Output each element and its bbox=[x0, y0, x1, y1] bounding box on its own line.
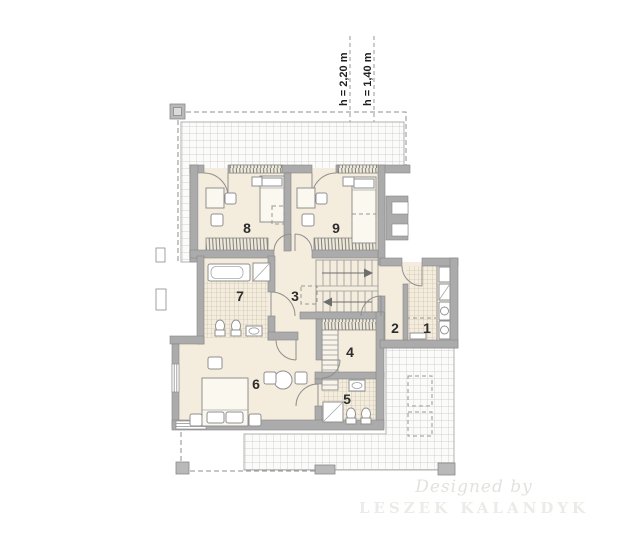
sink-icon-room-7 bbox=[246, 326, 262, 336]
watermark-script-line: Designed by bbox=[414, 477, 533, 497]
chair-icon-room-9 bbox=[316, 193, 327, 204]
designer-watermark: Designed by LESZEK KALANDYK bbox=[359, 477, 589, 517]
cabinet-icon-room-6 bbox=[208, 357, 222, 369]
nightstand-icon-left bbox=[190, 414, 202, 426]
pillow-icon bbox=[262, 178, 282, 186]
post-top-left-core bbox=[174, 108, 182, 116]
bidet-icon-room-5 bbox=[361, 408, 371, 424]
desk-icon-room-9 bbox=[297, 188, 315, 208]
roof-height-annotations: h = 2,20 m h = 1,40 m bbox=[338, 52, 374, 106]
room-label-4: 4 bbox=[346, 344, 354, 360]
washer-icon bbox=[439, 302, 450, 320]
window-room-8 bbox=[230, 165, 282, 173]
pilaster-left-lower bbox=[156, 289, 166, 310]
room-label-7: 7 bbox=[236, 288, 244, 304]
post-bottom-middle bbox=[315, 465, 335, 474]
post-bottom-right bbox=[438, 463, 455, 475]
post-bottom-left bbox=[176, 462, 189, 474]
room-label-2: 2 bbox=[391, 320, 399, 336]
bidet-icon-room-7 bbox=[231, 320, 241, 336]
pillow-icon bbox=[226, 412, 243, 423]
cabinet-icon-room-8 bbox=[211, 214, 223, 226]
chair-icon bbox=[264, 372, 276, 384]
sink-icon-room-5 bbox=[349, 380, 365, 391]
watermark-name-line: LESZEK KALANDYK bbox=[359, 499, 589, 517]
floor-plan-page: h = 2,20 m h = 1,40 m bbox=[0, 0, 638, 556]
desk-icon-room-8 bbox=[206, 188, 224, 208]
wardrobe-room-4 bbox=[322, 318, 378, 330]
toilet-icon-room-7 bbox=[215, 320, 225, 336]
height-label-1: h = 2,20 m bbox=[338, 52, 350, 106]
dryer-icon bbox=[439, 321, 450, 339]
pillow-icon bbox=[354, 179, 374, 188]
room-label-5: 5 bbox=[343, 391, 351, 407]
chimney-block bbox=[386, 196, 408, 240]
cabinet-icon-room-9 bbox=[302, 214, 314, 226]
wardrobe-room-8 bbox=[206, 238, 268, 251]
room-label-1: 1 bbox=[423, 320, 431, 336]
chair-icon-room-8 bbox=[225, 193, 236, 204]
room-label-8: 8 bbox=[243, 220, 251, 236]
shelf-icon-room-1 bbox=[439, 267, 450, 282]
chair-icon bbox=[295, 372, 307, 384]
table-icon-room-6 bbox=[274, 371, 292, 389]
tiles-room-1 bbox=[406, 266, 436, 340]
room-label-3: 3 bbox=[291, 288, 299, 304]
pillow-icon bbox=[207, 412, 224, 423]
nightstand-icon-right bbox=[249, 414, 261, 426]
window-room-6-left bbox=[172, 364, 179, 392]
window-room-9 bbox=[338, 165, 378, 173]
height-label-2: h = 1,40 m bbox=[362, 52, 374, 106]
wall-left-bedrooms bbox=[190, 165, 198, 262]
shelf-icon-room-8 bbox=[252, 177, 262, 186]
room-label-6: 6 bbox=[252, 376, 260, 392]
wall-divider-8-9 bbox=[284, 173, 291, 251]
pilaster-left-upper bbox=[156, 248, 165, 262]
shelf-icon-room-9 bbox=[343, 177, 354, 186]
toilet-icon-room-5 bbox=[346, 408, 356, 424]
floor-plan-drawing: h = 2,20 m h = 1,40 m bbox=[0, 0, 638, 556]
room-label-9: 9 bbox=[332, 220, 340, 236]
wall-divider-1-2 bbox=[403, 284, 408, 340]
